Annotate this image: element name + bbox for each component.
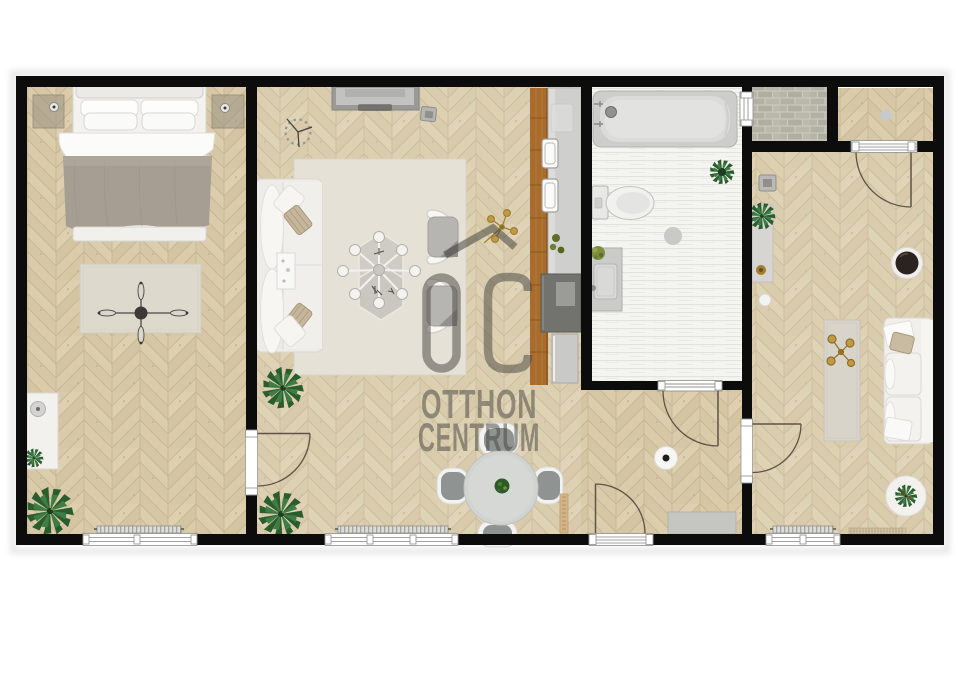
svg-text:CENTRUM: CENTRUM xyxy=(418,414,540,459)
